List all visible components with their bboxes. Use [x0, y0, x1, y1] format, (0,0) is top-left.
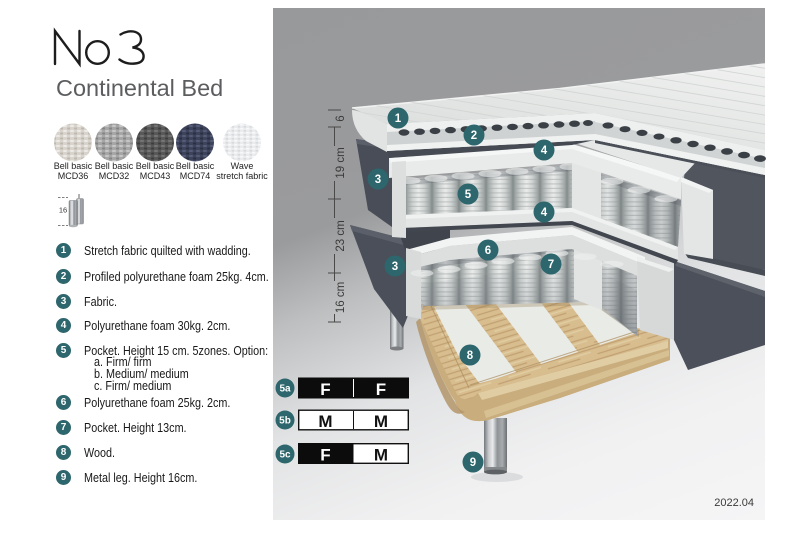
- svg-text:1: 1: [395, 113, 402, 125]
- svg-text:6: 6: [335, 115, 347, 121]
- svg-text:F: F: [376, 380, 386, 399]
- svg-text:5c: 5c: [279, 450, 291, 461]
- svg-text:F: F: [320, 380, 330, 399]
- svg-text:3: 3: [392, 261, 398, 273]
- svg-text:M: M: [374, 412, 388, 431]
- svg-text:F: F: [320, 446, 330, 465]
- svg-text:5b: 5b: [279, 416, 291, 427]
- svg-text:19 cm: 19 cm: [335, 147, 347, 178]
- svg-text:8: 8: [467, 350, 474, 362]
- svg-text:5: 5: [465, 189, 472, 201]
- svg-text:M: M: [374, 446, 388, 465]
- svg-text:2022.04: 2022.04: [714, 497, 754, 509]
- svg-text:4: 4: [541, 207, 548, 219]
- svg-text:2: 2: [471, 130, 477, 142]
- svg-text:4: 4: [541, 145, 548, 157]
- svg-text:3: 3: [375, 174, 381, 186]
- svg-text:6: 6: [485, 245, 491, 257]
- svg-text:M: M: [318, 412, 332, 431]
- svg-text:16 cm: 16 cm: [335, 282, 347, 313]
- svg-text:5a: 5a: [279, 384, 291, 395]
- svg-text:16: 16: [59, 206, 67, 215]
- svg-text:23 cm: 23 cm: [335, 220, 347, 251]
- svg-text:9: 9: [470, 457, 476, 469]
- svg-text:7: 7: [548, 259, 554, 271]
